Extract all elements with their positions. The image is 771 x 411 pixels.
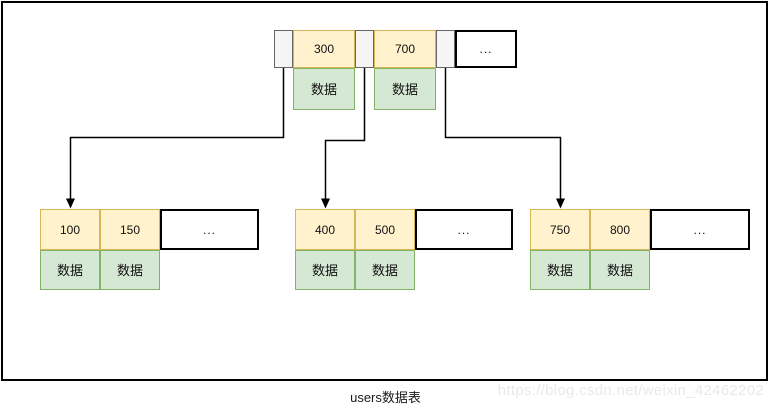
leaf-ellipsis-cell: ... (160, 209, 259, 250)
watermark-text: https://blog.csdn.net/weixin_42462202 (498, 382, 764, 399)
leaf-data-cell: 数据 (40, 250, 100, 290)
root-pointer-cell (355, 30, 374, 68)
root-pointer-cell (274, 30, 293, 68)
leaf-key-cell: 400 (295, 209, 355, 250)
leaf-key-cell: 750 (530, 209, 590, 250)
root-key-cell: 300 (293, 30, 355, 68)
root-data-cell: 数据 (293, 68, 355, 110)
leaf-data-cell: 数据 (530, 250, 590, 290)
leaf-key-cell: 800 (590, 209, 650, 250)
leaf-key-cell: 100 (40, 209, 100, 250)
leaf-ellipsis-cell: ... (415, 209, 513, 250)
leaf-key-cell: 150 (100, 209, 160, 250)
leaf-data-cell: 数据 (100, 250, 160, 290)
leaf-data-cell: 数据 (355, 250, 415, 290)
root-data-cell: 数据 (374, 68, 436, 110)
leaf-data-cell: 数据 (295, 250, 355, 290)
leaf-key-cell: 500 (355, 209, 415, 250)
leaf-data-cell: 数据 (590, 250, 650, 290)
root-key-cell: 700 (374, 30, 436, 68)
root-ellipsis-cell: ... (455, 30, 517, 68)
leaf-ellipsis-cell: ... (650, 209, 750, 250)
diagram-canvas: 300 700 ... 数据 数据 100 150 ... 数据 数据 400 … (0, 0, 771, 411)
root-pointer-cell (436, 30, 455, 68)
